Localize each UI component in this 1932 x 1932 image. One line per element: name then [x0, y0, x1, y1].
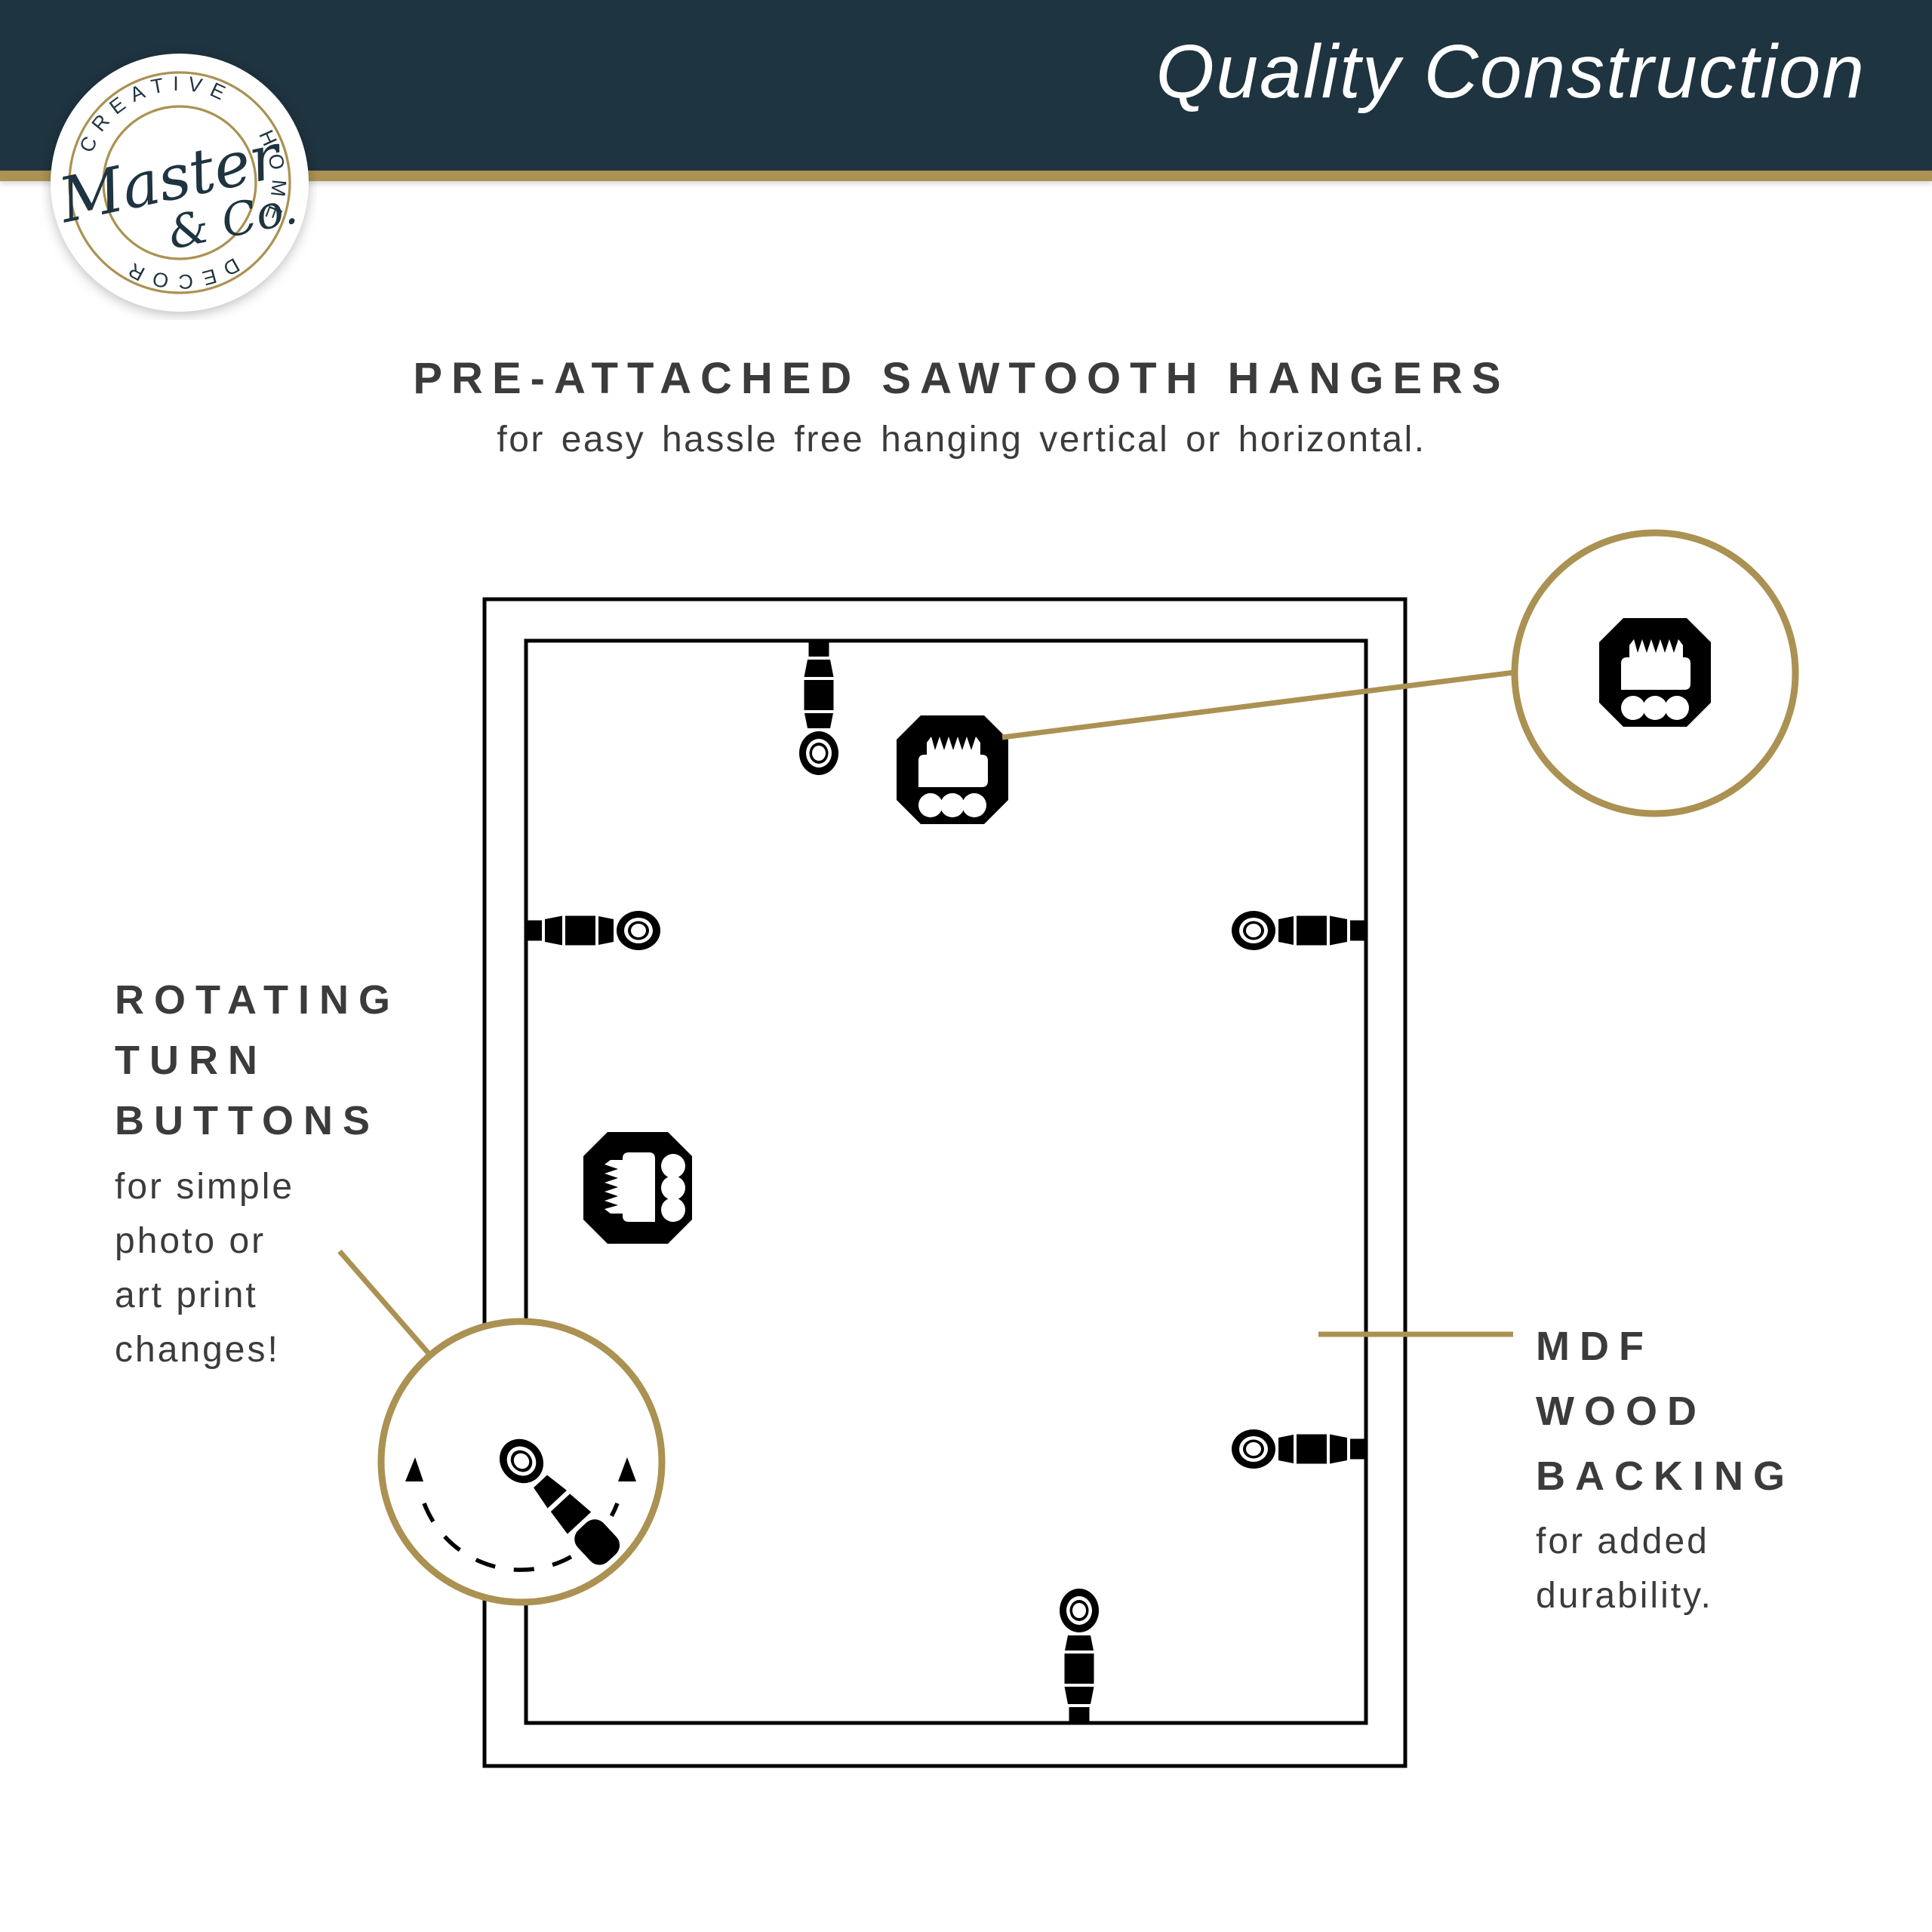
hero-section: PRE-ATTACHED SAWTOOTH HANGERS for easy h…: [0, 353, 1923, 460]
mdf-backing-callout: MDF WOOD BACKING for added durability.: [1536, 1314, 1795, 1623]
callout-title-line: ROTATING: [115, 970, 400, 1030]
rotating-turn-buttons-callout: ROTATING TURN BUTTONS for simple photo o…: [115, 970, 400, 1377]
callout-body-line: art print: [115, 1269, 400, 1323]
hero-title: PRE-ATTACHED SAWTOOTH HANGERS: [0, 353, 1923, 404]
page-background: { "colors": { "navy": "#1E3440", "gold":…: [0, 0, 1932, 1932]
callout-title-line: TURN: [115, 1030, 400, 1091]
callout-title-line: BACKING: [1536, 1444, 1795, 1509]
sawtooth-hanger-icon-zoomed: [1599, 618, 1711, 727]
hero-subtitle: for easy hassle free hanging vertical or…: [0, 419, 1923, 460]
callout-title-line: BUTTONS: [115, 1091, 400, 1151]
callout-body-line: durability.: [1536, 1569, 1795, 1623]
callout-body-line: for simple: [115, 1160, 400, 1214]
brand-badge-icon: CREATIVE HOME DECOR Master & Co.: [42, 45, 317, 320]
sawtooth-hanger-icon-side: [583, 1132, 692, 1244]
callout-body-line: for added: [1536, 1515, 1795, 1569]
sawtooth-hanger-icon-top: [897, 715, 1008, 824]
callout-title-line: MDF: [1536, 1314, 1795, 1379]
callout-body-line: changes!: [115, 1323, 400, 1377]
callout-title-line: WOOD: [1536, 1379, 1795, 1444]
callout-body-line: photo or: [115, 1214, 400, 1269]
